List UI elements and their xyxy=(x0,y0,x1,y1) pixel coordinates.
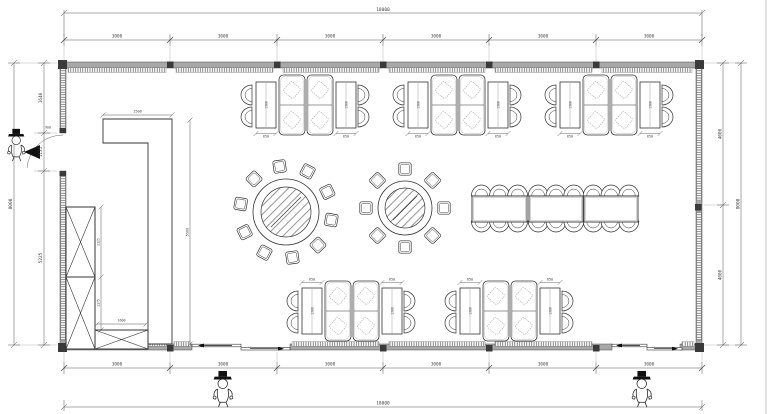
door-leaf-icon xyxy=(24,145,40,159)
window-icon xyxy=(68,68,166,73)
chair-icon xyxy=(510,107,521,127)
chair-icon xyxy=(445,291,456,311)
chair-icon xyxy=(287,313,298,333)
chair-icon xyxy=(564,185,584,196)
person-figure xyxy=(8,129,26,161)
floorplan-canvas: 1300650130065013006501300650130065013006… xyxy=(0,0,772,414)
booth-sofa xyxy=(583,75,609,135)
round-table xyxy=(234,159,339,264)
chair-icon xyxy=(360,202,372,214)
dim-label: 650 xyxy=(309,278,315,282)
chair-icon xyxy=(471,185,491,196)
chair-icon xyxy=(236,224,253,241)
chair-icon xyxy=(545,85,556,105)
post xyxy=(167,62,174,69)
dim-label: 3000 xyxy=(538,362,549,368)
booth-sofa xyxy=(431,75,457,135)
dim-label: 1300 xyxy=(344,101,348,109)
dim-label: 1300 xyxy=(390,307,394,315)
banquet-table xyxy=(471,185,638,232)
floorplan-page: 1300650130065013006501300650130065013006… xyxy=(0,0,772,414)
banquet-table-top xyxy=(529,196,583,222)
window-icon xyxy=(174,342,190,347)
corner-column xyxy=(695,343,704,352)
dim-label: 4000 xyxy=(718,269,724,280)
chair-icon xyxy=(662,85,673,105)
post xyxy=(695,204,702,211)
chair-icon xyxy=(619,185,639,196)
chair-icon xyxy=(369,172,387,190)
chair-icon xyxy=(309,236,327,254)
booth-sofa xyxy=(353,281,379,341)
post xyxy=(380,345,387,352)
chair-icon xyxy=(601,221,621,232)
post xyxy=(274,62,281,69)
door-jamb xyxy=(60,128,67,133)
window-icon xyxy=(176,68,273,73)
post xyxy=(593,345,600,352)
post xyxy=(593,62,600,69)
dim-label: 650 xyxy=(467,278,473,282)
booth-sofa xyxy=(279,75,305,135)
banquet-table-top xyxy=(584,196,638,222)
chair-icon xyxy=(273,159,287,173)
dim-label: 1300 xyxy=(548,307,552,315)
dim-label: 1300 xyxy=(310,307,314,315)
chair-icon xyxy=(562,313,573,333)
chair-icon xyxy=(358,85,369,105)
chair-icon xyxy=(546,185,566,196)
window-icon xyxy=(495,68,592,73)
booth-sofa xyxy=(483,281,509,341)
chair-icon xyxy=(393,107,404,127)
chair-icon xyxy=(241,85,252,105)
chair-icon xyxy=(510,85,521,105)
window-icon xyxy=(61,68,66,128)
dim-label: 3000 xyxy=(644,34,655,40)
dim-label: 8000 xyxy=(736,198,742,209)
chair-icon xyxy=(241,107,252,127)
chair-icon xyxy=(324,213,338,227)
chair-icon xyxy=(424,227,442,245)
furniture: 1300650130065013006501300650130065013006… xyxy=(234,75,673,341)
dim-label: 1135 xyxy=(38,146,44,157)
corner-column xyxy=(58,60,67,69)
dim-label: 1175 xyxy=(96,299,100,307)
dim-label: 3000 xyxy=(431,34,442,40)
chair-icon xyxy=(319,184,336,201)
dim-label: 1300 xyxy=(416,101,420,109)
banquet-table-top xyxy=(472,196,527,222)
chair-icon xyxy=(490,221,510,232)
chair-icon xyxy=(471,221,491,232)
booth-sofa xyxy=(611,75,637,135)
dim-label: 18000 xyxy=(376,7,390,13)
dim-label: 650 xyxy=(647,135,653,139)
chair-icon xyxy=(245,170,263,188)
window-icon xyxy=(61,176,66,340)
chair-icon xyxy=(662,107,673,127)
chair-icon xyxy=(562,291,573,311)
window-icon xyxy=(602,68,692,73)
door-jamb xyxy=(60,171,67,176)
dim-label: 650 xyxy=(389,278,395,282)
dim-label: 8000 xyxy=(8,198,14,209)
chair-icon xyxy=(564,221,584,232)
window-icon xyxy=(682,342,694,347)
dim-label: 3000 xyxy=(431,362,442,368)
window-icon xyxy=(292,342,379,347)
chair-icon xyxy=(508,221,528,232)
chair-icon xyxy=(404,291,415,311)
booth-sofa xyxy=(307,75,333,135)
chair-icon xyxy=(399,163,411,175)
chair-icon xyxy=(601,185,621,196)
post xyxy=(486,345,493,352)
chair-icon xyxy=(619,221,639,232)
dim-label: 3000 xyxy=(218,34,229,40)
booth-sofa xyxy=(325,281,351,341)
booth-sofa xyxy=(511,281,537,341)
chair-icon xyxy=(490,185,510,196)
dim-label: 1300 xyxy=(648,101,652,109)
dim-label: 3000 xyxy=(218,362,229,368)
chair-icon xyxy=(234,197,248,211)
dim-label: 3000 xyxy=(644,362,655,368)
chair-icon xyxy=(438,202,450,214)
chair-icon xyxy=(369,227,387,245)
person-figure xyxy=(632,371,652,407)
dim-label: 3000 xyxy=(538,34,549,40)
dim-label: 1300 xyxy=(468,307,472,315)
chair-icon xyxy=(583,185,603,196)
dim-label: 650 xyxy=(263,135,269,139)
chair-icon xyxy=(404,313,415,333)
chair-icon xyxy=(528,185,548,196)
bar-area xyxy=(66,119,172,349)
dim-label: 650 xyxy=(415,135,421,139)
chair-icon xyxy=(285,251,299,265)
window-icon xyxy=(389,68,485,73)
dim-label: 650 xyxy=(547,278,553,282)
dim-label: 650 xyxy=(567,135,573,139)
window-icon xyxy=(697,68,702,200)
chair-icon xyxy=(358,107,369,127)
dim-label: 3000 xyxy=(112,34,123,40)
round-table xyxy=(360,163,450,253)
booth-sofa xyxy=(459,75,485,135)
chair-icon xyxy=(256,244,273,261)
dim-label: 900 xyxy=(45,126,51,130)
chair-icon xyxy=(287,291,298,311)
chair-icon xyxy=(528,221,548,232)
dim-label: 18000 xyxy=(376,401,390,407)
bar-counter xyxy=(103,119,172,344)
dim-label: 5225 xyxy=(38,252,44,263)
post xyxy=(167,345,174,352)
dim-label: 4000 xyxy=(718,128,724,139)
dim-label: 3000 xyxy=(325,34,336,40)
chair-icon xyxy=(299,163,316,180)
dim-label: 1640 xyxy=(38,92,44,103)
dim-label: 1300 xyxy=(496,101,500,109)
window-icon xyxy=(389,342,485,347)
window-icon xyxy=(697,212,702,340)
chair-icon xyxy=(546,221,566,232)
chair-icon xyxy=(399,241,411,253)
corner-column xyxy=(695,60,704,69)
dim-label: 1300 xyxy=(568,101,572,109)
dim-label: 3000 xyxy=(325,362,336,368)
window-icon xyxy=(283,68,379,73)
window-icon xyxy=(495,342,592,347)
dim-label: 2125 xyxy=(96,238,100,246)
chair-icon xyxy=(424,172,442,190)
dim-label: 1500 xyxy=(133,110,142,114)
dim-label: 650 xyxy=(495,135,501,139)
post xyxy=(380,62,387,69)
dim-label: 3000 xyxy=(112,362,123,368)
person-figure xyxy=(213,371,233,407)
chair-icon xyxy=(545,107,556,127)
chair-icon xyxy=(508,185,528,196)
dim-label: 1300 xyxy=(264,101,268,109)
chair-icon xyxy=(393,85,404,105)
post xyxy=(486,62,493,69)
dim-label: 1600 xyxy=(117,319,125,323)
chair-icon xyxy=(583,221,603,232)
dim-label: 650 xyxy=(343,135,349,139)
chair-icon xyxy=(445,313,456,333)
dim-label: 5500 xyxy=(185,228,189,237)
